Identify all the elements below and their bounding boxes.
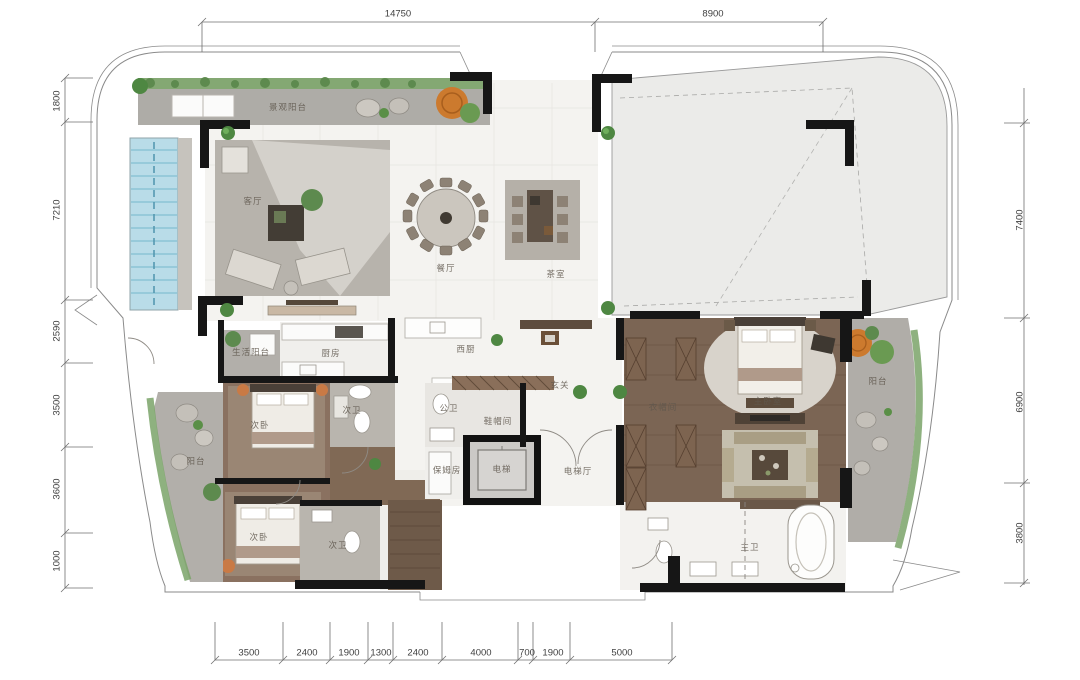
view-terrace-deck: [138, 77, 490, 125]
living-room-furniture: [215, 140, 390, 315]
floor-plan-canvas: 景观阳台客厅餐厅茶室生活阳台厨房西厨玄关次卧次卫公卫鞋帽间保姆房电梯电梯厅衣帽间…: [0, 0, 1080, 680]
balcony-right-deck: [844, 318, 919, 548]
bedroom-3-floor: [215, 480, 442, 590]
utility-balcony-floor: [223, 330, 280, 380]
floor-plan-drawing: [0, 0, 1080, 680]
tea-room-platform: [505, 180, 580, 260]
roof-area: [612, 57, 947, 315]
master-suite-floor: [624, 317, 846, 510]
bedroom-2-floor: [223, 380, 395, 482]
balcony-left-deck: [150, 392, 223, 582]
pool: [130, 138, 192, 310]
kitchen-fixtures: [280, 322, 390, 380]
